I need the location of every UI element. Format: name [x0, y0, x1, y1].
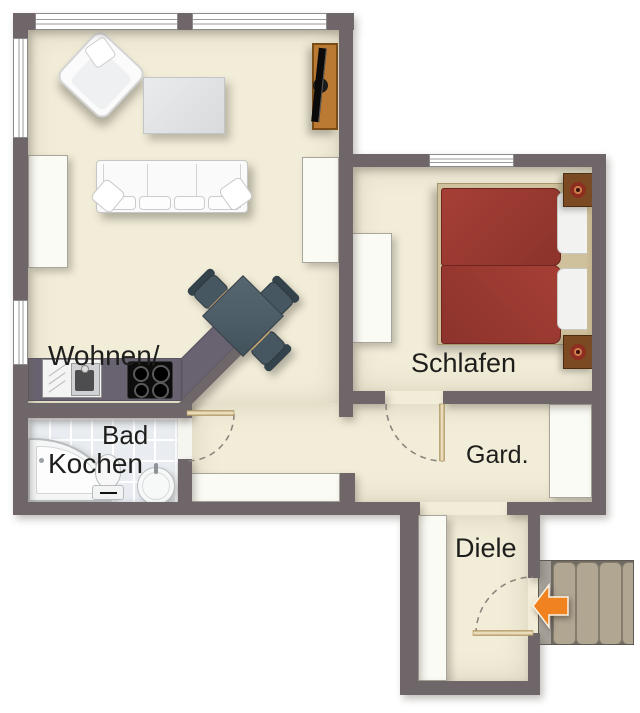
bathtub-drain-icon: [39, 458, 44, 463]
room-label-living-line1: Wohnen/: [48, 338, 160, 374]
wall-living-bedroom-divider: [339, 13, 353, 417]
stair-tread: [553, 562, 576, 645]
double-bed: [437, 183, 593, 345]
floor-plan: Wohnen/ Kochen Schlafen Bad Gard. Diele: [0, 0, 640, 713]
lamp-icon: [570, 182, 586, 198]
nightstand: [563, 335, 593, 369]
stair-landing: [539, 561, 551, 644]
wall-bottom-east: [507, 502, 606, 515]
room-label-bedroom: Schlafen: [411, 348, 516, 379]
wall-bath-stub: [178, 459, 192, 502]
room-label-living: Wohnen/ Kochen: [48, 266, 160, 554]
wall-bedroom-bottom-right: [443, 391, 592, 404]
bedroom-wardrobe: [352, 233, 392, 343]
bed-duvet-bottom: [441, 265, 561, 344]
stair-tread: [576, 562, 599, 645]
window: [35, 13, 178, 30]
wall-bedroom-right: [592, 154, 606, 508]
room-label-wardrobe: Gard.: [466, 441, 529, 470]
lamp-icon: [570, 344, 586, 360]
entrance-stairs: [538, 560, 634, 645]
room-label-hallway: Diele: [455, 533, 517, 564]
window: [192, 13, 327, 30]
bed-duvet-top: [441, 188, 561, 266]
window: [13, 300, 28, 365]
window: [13, 38, 28, 138]
wall-corridor-pier: [340, 473, 355, 502]
room-label-bathroom: Bad: [102, 420, 148, 451]
wall-hallway-right-lower: [528, 633, 540, 681]
wall-hallway-left: [400, 502, 418, 695]
hallway-closet: [418, 515, 447, 681]
window: [429, 154, 514, 167]
corridor-sideboard: [190, 473, 340, 502]
gard-closet: [549, 404, 592, 498]
stair-tread: [622, 562, 634, 645]
stair-tread: [599, 562, 622, 645]
room-label-living-line2: Kochen: [48, 446, 160, 482]
nightstand: [563, 173, 593, 207]
wall-hallway-right-upper: [528, 515, 540, 578]
wall-hallway-bottom: [400, 681, 540, 695]
wall-bedroom-bottom-left: [353, 391, 385, 404]
